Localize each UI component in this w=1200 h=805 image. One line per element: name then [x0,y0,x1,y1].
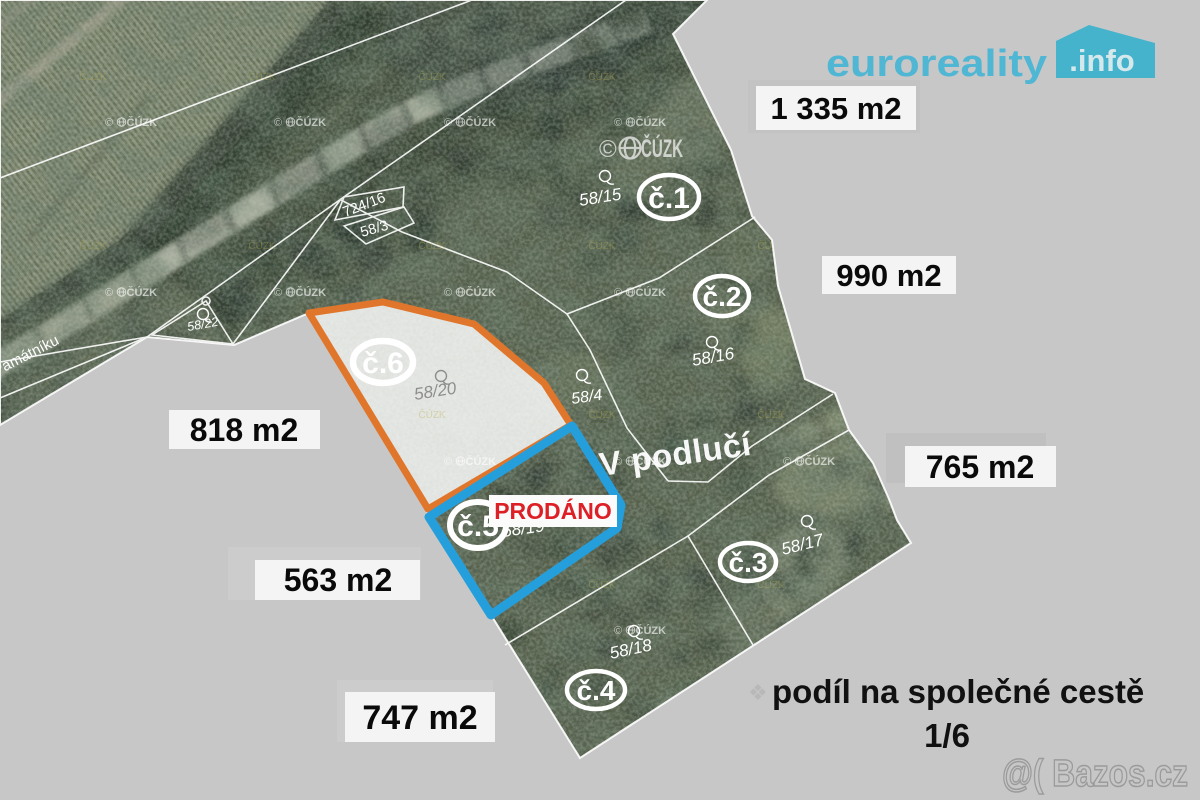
svg-text:č.2: č.2 [703,281,742,312]
svg-text:563 m2: 563 m2 [284,562,393,598]
svg-text:ČÚZK: ČÚZK [296,116,327,129]
svg-text:747 m2: 747 m2 [362,699,477,737]
svg-text:podíl na společné cestě: podíl na společné cestě [772,673,1144,710]
svg-text:ČÚZK: ČÚZK [636,116,667,129]
svg-text:ČÚZK: ČÚZK [588,408,616,421]
svg-text:1 335 m2: 1 335 m2 [771,91,902,126]
svg-text:č.6: č.6 [362,347,404,380]
svg-text:č.1: č.1 [648,182,690,215]
svg-text:©: © [783,456,791,468]
svg-text:ČÚZK: ČÚZK [588,70,616,83]
svg-text:ČÚZK: ČÚZK [248,70,276,83]
svg-text:©: © [444,117,452,129]
svg-text:990 m2: 990 m2 [836,258,941,293]
svg-text:ČÚZK: ČÚZK [418,70,446,83]
svg-text:818 m2: 818 m2 [190,412,299,448]
svg-text:©: © [274,287,282,299]
svg-text:ČÚZK: ČÚZK [757,408,785,421]
svg-text:ČÚZK: ČÚZK [127,116,158,129]
svg-text:.info: .info [1069,43,1134,78]
svg-text:ČÚZK: ČÚZK [79,70,107,83]
svg-text:ČÚZK: ČÚZK [466,455,497,468]
svg-text:ČÚZK: ČÚZK [805,455,836,468]
svg-text:ČÚZK: ČÚZK [79,239,107,252]
svg-text:PRODÁNO: PRODÁNO [494,497,612,524]
svg-text:ČÚZK: ČÚZK [418,408,446,421]
svg-text:ČÚZK: ČÚZK [588,578,616,591]
svg-text:ČÚZK: ČÚZK [248,239,276,252]
svg-text:ČÚZK: ČÚZK [466,286,497,299]
svg-text:©: © [444,287,452,299]
svg-text:euroreality: euroreality [826,43,1047,85]
svg-text:©: © [274,117,282,129]
svg-text:©: © [599,136,617,163]
svg-text:ČÚZK: ČÚZK [641,133,683,163]
svg-text:765 m2: 765 m2 [926,449,1035,485]
svg-text:©: © [614,625,622,637]
svg-text:©: © [614,117,622,129]
svg-text:ČÚZK: ČÚZK [588,239,616,252]
svg-text:ČÚZK: ČÚZK [127,286,158,299]
svg-text:ČÚZK: ČÚZK [418,239,446,252]
svg-text:@( Bazos.cz: @( Bazos.cz [1002,753,1188,795]
svg-text:č.4: č.4 [577,675,616,706]
svg-text:©: © [614,287,622,299]
svg-text:❖: ❖ [748,680,768,705]
svg-text:1/6: 1/6 [924,717,970,754]
svg-text:ČÚZK: ČÚZK [466,116,497,129]
svg-text:ČÚZK: ČÚZK [636,286,667,299]
svg-text:č.3: č.3 [729,547,768,578]
svg-text:©: © [105,287,113,299]
svg-text:ČÚZK: ČÚZK [296,286,327,299]
svg-text:©: © [444,456,452,468]
svg-text:©: © [105,117,113,129]
